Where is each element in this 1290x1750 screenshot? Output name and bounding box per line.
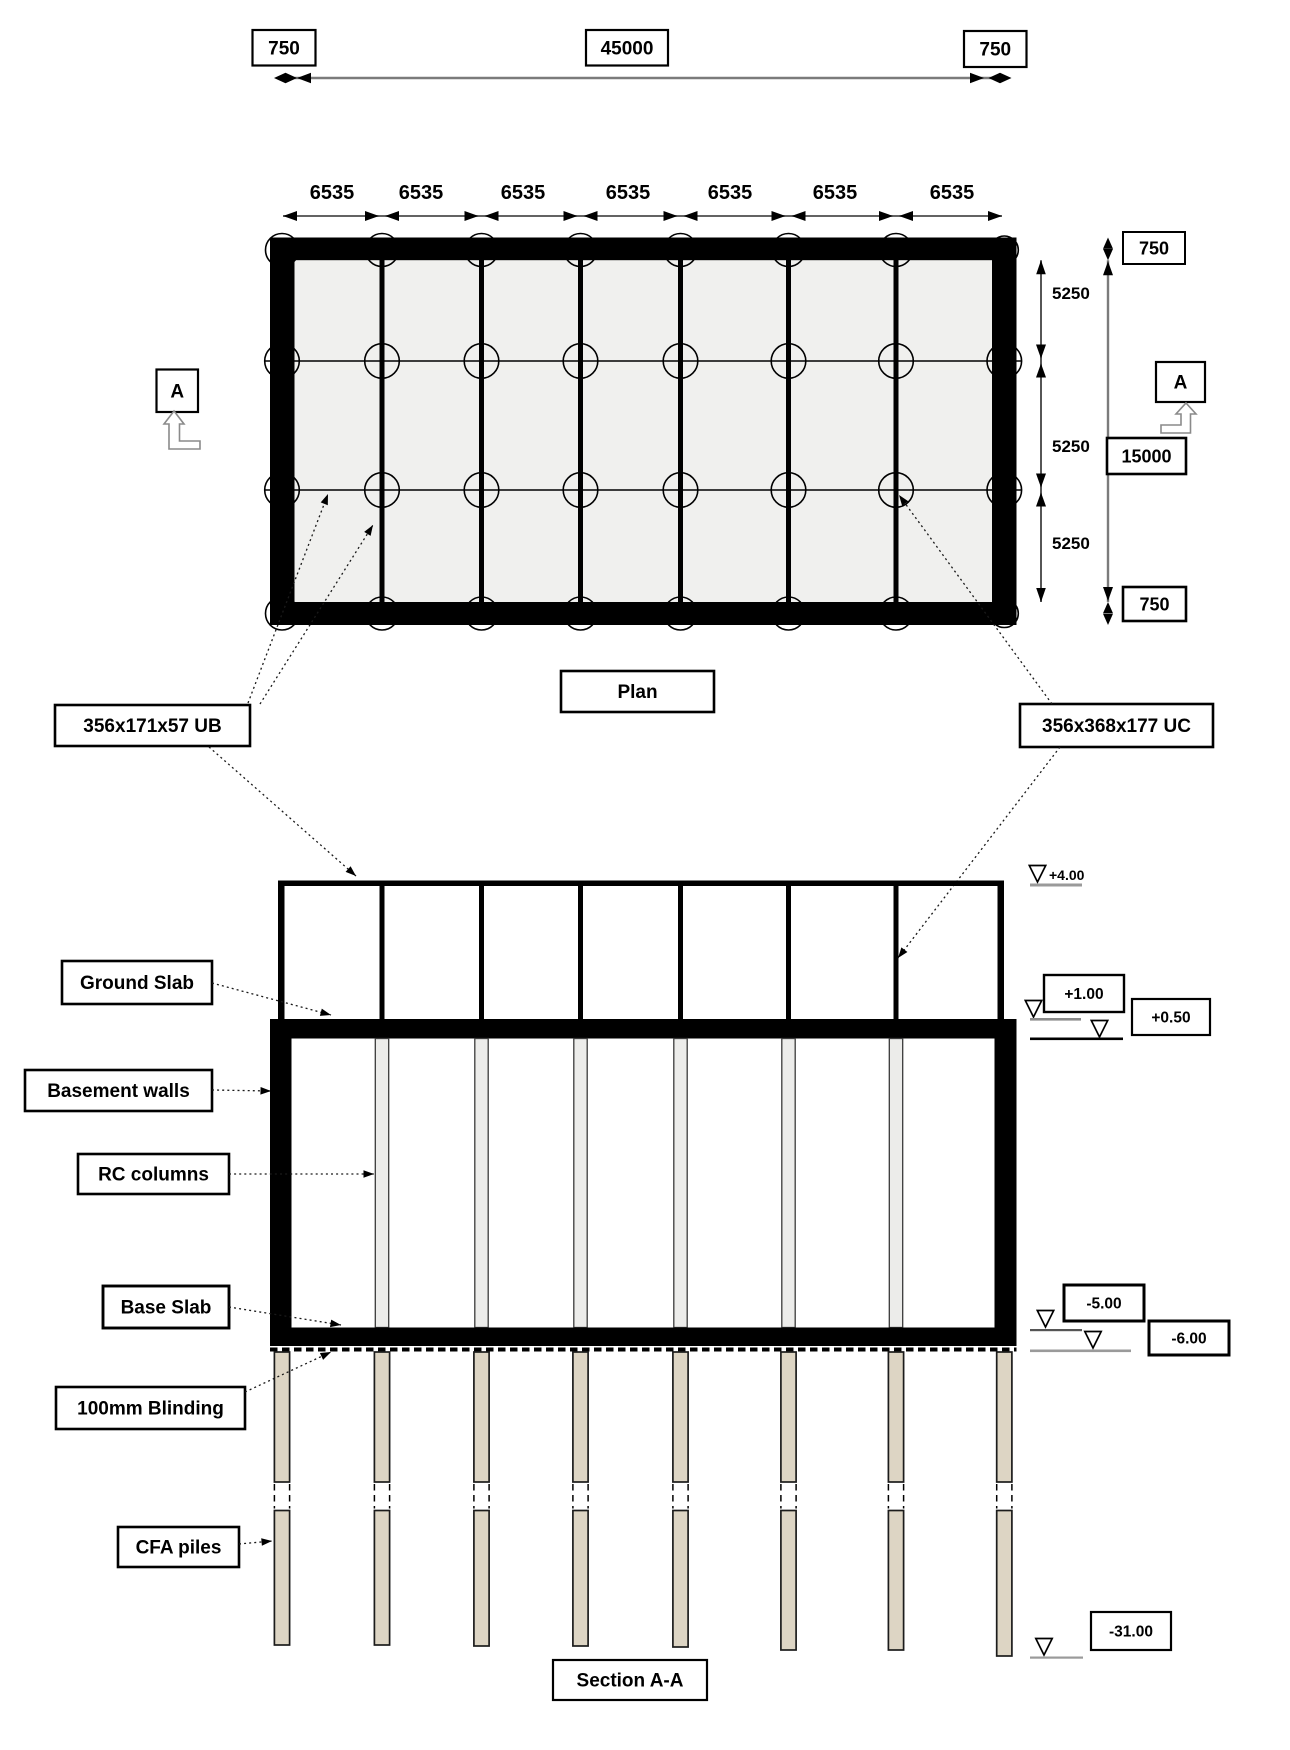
svg-text:750: 750 (1139, 238, 1169, 258)
svg-text:Section A-A: Section A-A (577, 1671, 684, 1692)
svg-text:-31.00: -31.00 (1109, 1623, 1153, 1640)
svg-text:356x368x177 UC: 356x368x177 UC (1042, 716, 1191, 737)
svg-text:6535: 6535 (399, 182, 444, 204)
svg-text:Plan: Plan (617, 682, 657, 703)
svg-text:6535: 6535 (813, 182, 858, 204)
svg-text:A: A (170, 381, 184, 402)
svg-text:6535: 6535 (310, 182, 355, 204)
svg-text:-6.00: -6.00 (1171, 1330, 1206, 1347)
svg-text:45000: 45000 (601, 38, 654, 59)
svg-text:+1.00: +1.00 (1064, 986, 1103, 1003)
svg-text:5250: 5250 (1052, 284, 1090, 303)
svg-text:Basement walls: Basement walls (47, 1081, 190, 1102)
svg-text:A: A (1174, 373, 1188, 394)
svg-text:6535: 6535 (501, 182, 546, 204)
svg-text:Ground Slab: Ground Slab (80, 973, 194, 994)
svg-text:5250: 5250 (1052, 534, 1090, 553)
svg-text:750: 750 (979, 40, 1011, 61)
svg-text:6535: 6535 (606, 182, 651, 204)
svg-text:+4.00: +4.00 (1049, 867, 1085, 883)
svg-text:750: 750 (268, 38, 300, 59)
svg-text:Base Slab: Base Slab (121, 1298, 212, 1319)
svg-text:6535: 6535 (930, 182, 975, 204)
svg-text:6535: 6535 (708, 182, 753, 204)
svg-text:CFA piles: CFA piles (136, 1538, 222, 1559)
svg-text:RC columns: RC columns (98, 1165, 209, 1186)
svg-text:750: 750 (1139, 594, 1169, 614)
svg-text:-5.00: -5.00 (1086, 1295, 1121, 1312)
svg-text:356x171x57 UB: 356x171x57 UB (83, 716, 221, 737)
svg-text:15000: 15000 (1121, 446, 1171, 466)
svg-text:+0.50: +0.50 (1151, 1009, 1190, 1026)
svg-text:5250: 5250 (1052, 437, 1090, 456)
svg-text:100mm Blinding: 100mm Blinding (77, 1399, 224, 1420)
